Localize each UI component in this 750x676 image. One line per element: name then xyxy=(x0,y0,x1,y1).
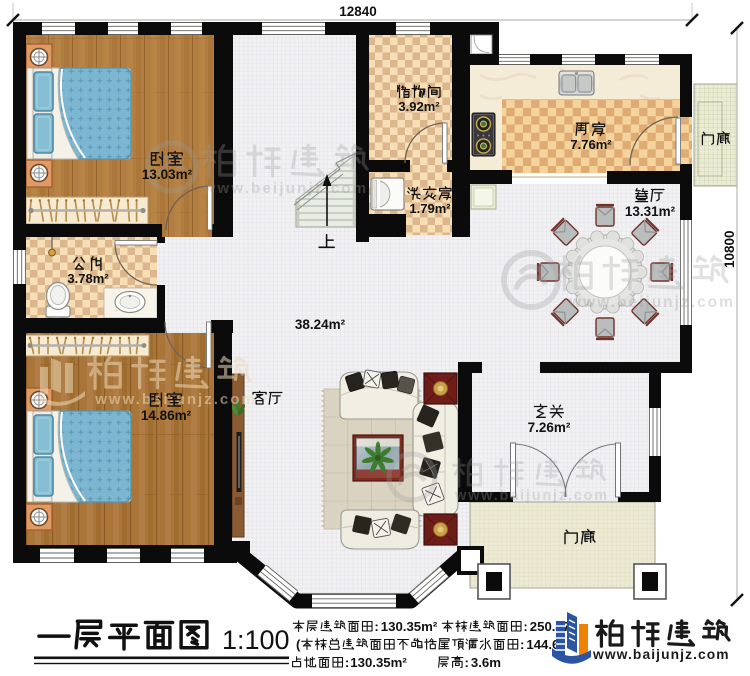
svg-text:www.beijunjz.com: www.beijunjz.com xyxy=(203,180,369,197)
svg-text:3.92m²: 3.92m² xyxy=(398,99,440,114)
svg-text:1:100: 1:100 xyxy=(222,625,290,655)
svg-text::: : xyxy=(523,619,527,634)
svg-text:13.31m²: 13.31m² xyxy=(625,204,676,219)
svg-text:14.86m²: 14.86m² xyxy=(141,408,192,423)
svg-text:10800: 10800 xyxy=(722,230,737,268)
svg-text:www.baijunjz.com: www.baijunjz.com xyxy=(454,488,609,504)
svg-text:12840: 12840 xyxy=(339,4,377,19)
svg-text::: : xyxy=(465,655,469,670)
svg-text:38.24m²: 38.24m² xyxy=(295,317,346,332)
svg-text:1.79m²: 1.79m² xyxy=(409,201,451,216)
svg-text::: : xyxy=(345,655,349,670)
svg-text:130.35m²: 130.35m² xyxy=(381,619,438,634)
svg-text:(: ( xyxy=(296,637,301,652)
svg-text:130.35m²: 130.35m² xyxy=(350,655,407,670)
svg-text::: : xyxy=(520,637,524,652)
svg-text:www.beijunjz.com: www.beijunjz.com xyxy=(568,294,735,311)
svg-text:www.baijunjz.com: www.baijunjz.com xyxy=(592,647,730,662)
svg-text:7.76m²: 7.76m² xyxy=(570,137,612,152)
svg-text:3.6m: 3.6m xyxy=(471,655,501,670)
svg-text:3.78m²: 3.78m² xyxy=(67,271,109,286)
svg-text:13.03m²: 13.03m² xyxy=(142,167,193,182)
svg-text:7.26m²: 7.26m² xyxy=(528,420,571,435)
svg-text:144.6: 144.6 xyxy=(526,637,559,652)
svg-text::: : xyxy=(374,619,378,634)
